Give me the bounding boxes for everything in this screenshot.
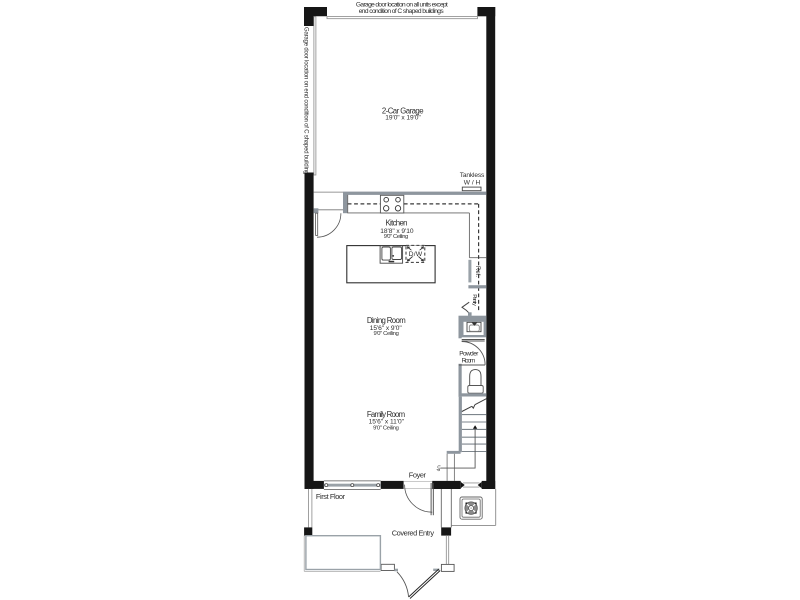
- svg-text:Up: Up: [436, 465, 442, 471]
- svg-text:Dining Room: Dining Room: [367, 316, 406, 325]
- svg-text:Tankless: Tankless: [460, 172, 485, 179]
- svg-text:First Floor: First Floor: [316, 492, 346, 501]
- svg-text:Garage door location on end co: Garage door location on end condition of…: [302, 27, 308, 177]
- svg-text:Foyer: Foyer: [409, 470, 427, 479]
- svg-text:9'0" Ceiling: 9'0" Ceiling: [384, 234, 409, 240]
- svg-text:Ref.: Ref.: [474, 266, 480, 277]
- svg-text:D/W: D/W: [409, 251, 423, 258]
- svg-text:9'0" Ceiling: 9'0" Ceiling: [374, 331, 399, 337]
- svg-text:Covered Entry: Covered Entry: [392, 528, 435, 537]
- svg-text:9'0" Ceiling: 9'0" Ceiling: [373, 425, 399, 431]
- svg-text:Family Room: Family Room: [367, 410, 405, 419]
- svg-text:Powder: Powder: [459, 351, 479, 358]
- svg-text:end condition of C shaped buil: end condition of C shaped buildings: [359, 8, 445, 15]
- svg-text:Room: Room: [462, 358, 476, 365]
- svg-text:W/H: W/H: [464, 180, 481, 187]
- svg-text:19'0" x 19'0": 19'0" x 19'0": [385, 115, 421, 122]
- svg-text:Kitchen: Kitchen: [386, 218, 408, 227]
- svg-text:Pantry: Pantry: [471, 294, 477, 306]
